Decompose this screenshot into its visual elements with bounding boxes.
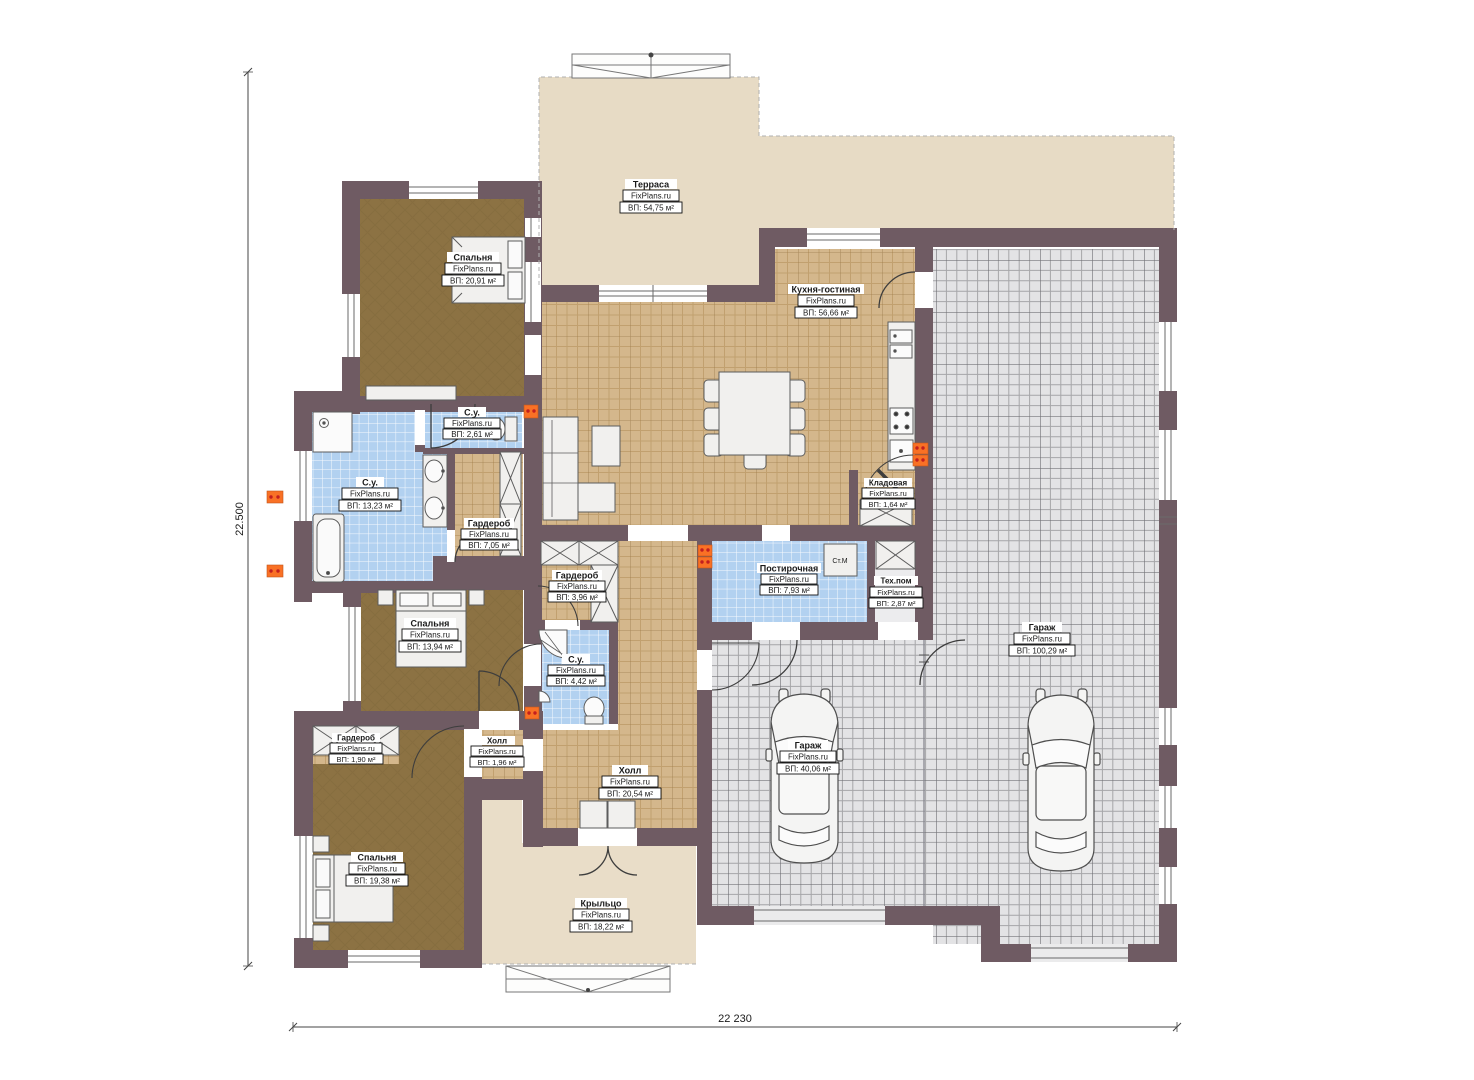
svg-text:ВП: 18,22 м²: ВП: 18,22 м² bbox=[578, 923, 624, 932]
svg-text:Ст.М: Ст.М bbox=[832, 558, 847, 565]
svg-text:ВП: 13,23 м²: ВП: 13,23 м² bbox=[347, 502, 393, 511]
svg-text:FixPlans.ru: FixPlans.ru bbox=[788, 753, 828, 762]
svg-text:ВП: 2,87 м²: ВП: 2,87 м² bbox=[877, 599, 916, 608]
svg-text:Гардероб: Гардероб bbox=[337, 734, 375, 743]
svg-text:FixPlans.ru: FixPlans.ru bbox=[869, 489, 907, 498]
svg-text:ВП: 54,75 м²: ВП: 54,75 м² bbox=[628, 204, 674, 213]
svg-text:Кладовая: Кладовая bbox=[869, 479, 908, 488]
svg-text:ВП: 1,64 м²: ВП: 1,64 м² bbox=[869, 500, 908, 509]
svg-text:FixPlans.ru: FixPlans.ru bbox=[631, 192, 671, 201]
svg-text:FixPlans.ru: FixPlans.ru bbox=[581, 911, 621, 920]
svg-text:ВП: 7,93 м²: ВП: 7,93 м² bbox=[768, 586, 810, 595]
svg-text:ВП: 2,61 м²: ВП: 2,61 м² bbox=[451, 430, 493, 439]
svg-text:ВП: 40,06 м²: ВП: 40,06 м² bbox=[785, 765, 831, 774]
svg-text:FixPlans.ru: FixPlans.ru bbox=[410, 631, 450, 640]
svg-text:Гардероб: Гардероб bbox=[556, 571, 599, 581]
svg-text:Терраса: Терраса bbox=[633, 180, 670, 190]
svg-text:FixPlans.ru: FixPlans.ru bbox=[806, 297, 846, 306]
svg-text:С.у.: С.у. bbox=[362, 478, 378, 488]
svg-text:ВП: 20,54 м²: ВП: 20,54 м² bbox=[607, 790, 653, 799]
svg-text:ВП: 13,94 м²: ВП: 13,94 м² bbox=[407, 643, 453, 652]
svg-text:FixPlans.ru: FixPlans.ru bbox=[1022, 635, 1062, 644]
svg-text:С.у.: С.у. bbox=[464, 408, 480, 418]
svg-text:Тех.пом: Тех.пом bbox=[880, 577, 911, 586]
svg-text:Крыльцо: Крыльцо bbox=[581, 899, 622, 909]
svg-text:FixPlans.ru: FixPlans.ru bbox=[877, 588, 915, 597]
svg-text:FixPlans.ru: FixPlans.ru bbox=[469, 530, 509, 539]
svg-text:Холл: Холл bbox=[619, 766, 642, 776]
svg-text:Гараж: Гараж bbox=[795, 741, 822, 751]
svg-text:Холл: Холл bbox=[487, 737, 507, 746]
svg-text:Гараж: Гараж bbox=[1029, 623, 1056, 633]
svg-text:ВП: 19,38 м²: ВП: 19,38 м² bbox=[354, 877, 400, 886]
svg-text:ВП: 4,42 м²: ВП: 4,42 м² bbox=[555, 677, 597, 686]
svg-text:FixPlans.ru: FixPlans.ru bbox=[337, 744, 375, 753]
svg-text:Кухня-гостиная: Кухня-гостиная bbox=[792, 285, 861, 295]
svg-text:FixPlans.ru: FixPlans.ru bbox=[453, 265, 493, 274]
svg-text:ВП: 100,29 м²: ВП: 100,29 м² bbox=[1017, 647, 1068, 656]
svg-text:FixPlans.ru: FixPlans.ru bbox=[350, 490, 390, 499]
svg-text:С.у.: С.у. bbox=[568, 655, 584, 665]
svg-text:22 230: 22 230 bbox=[718, 1013, 752, 1025]
svg-text:FixPlans.ru: FixPlans.ru bbox=[610, 778, 650, 787]
svg-text:FixPlans.ru: FixPlans.ru bbox=[556, 666, 596, 675]
svg-text:FixPlans.ru: FixPlans.ru bbox=[557, 582, 597, 591]
svg-text:Гардероб: Гардероб bbox=[468, 519, 511, 529]
svg-text:ВП: 1,96 м²: ВП: 1,96 м² bbox=[478, 758, 517, 767]
svg-text:Спальня: Спальня bbox=[358, 853, 397, 863]
svg-text:ВП: 3,96 м²: ВП: 3,96 м² bbox=[556, 593, 598, 602]
svg-text:ВП: 1,90 м²: ВП: 1,90 м² bbox=[337, 755, 376, 764]
svg-text:Постирочная: Постирочная bbox=[760, 564, 818, 574]
svg-text:FixPlans.ru: FixPlans.ru bbox=[769, 575, 809, 584]
svg-text:FixPlans.ru: FixPlans.ru bbox=[357, 865, 397, 874]
svg-text:ВП: 20,91 м²: ВП: 20,91 м² bbox=[450, 277, 496, 286]
svg-text:22.500: 22.500 bbox=[234, 502, 246, 536]
svg-text:FixPlans.ru: FixPlans.ru bbox=[452, 419, 492, 428]
svg-text:ВП: 56,66 м²: ВП: 56,66 м² bbox=[803, 309, 849, 318]
svg-text:Спальня: Спальня bbox=[454, 253, 493, 263]
svg-text:ВП: 7,05 м²: ВП: 7,05 м² bbox=[468, 541, 510, 550]
svg-text:FixPlans.ru: FixPlans.ru bbox=[478, 747, 516, 756]
svg-text:Спальня: Спальня bbox=[411, 619, 450, 629]
